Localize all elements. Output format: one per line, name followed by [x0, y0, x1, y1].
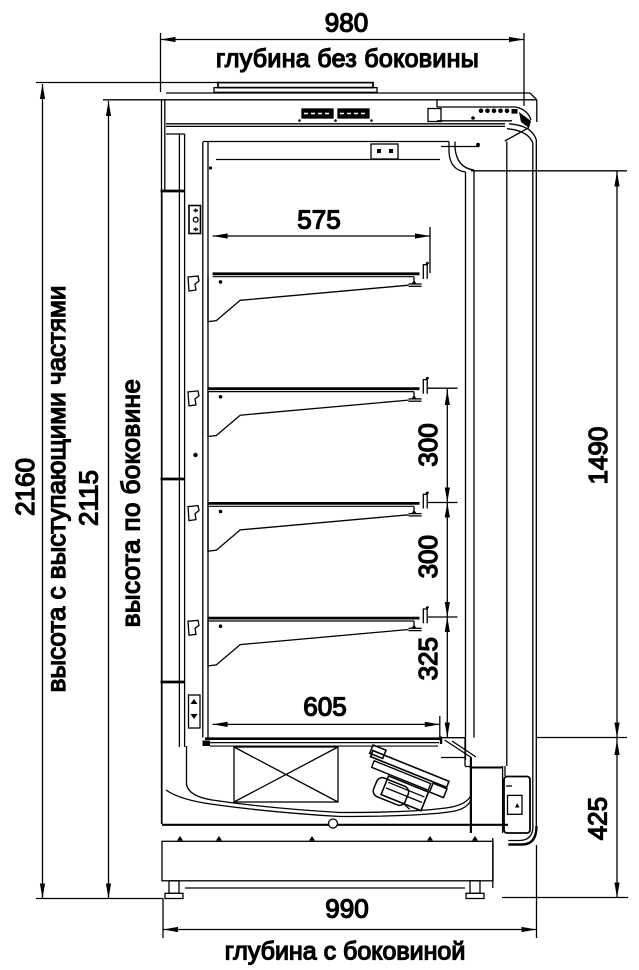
- svg-text:высота с выступающими частями: высота с выступающими частями: [41, 286, 71, 693]
- svg-text:высота по боковине: высота по боковине: [116, 379, 146, 628]
- svg-text:1490: 1490: [583, 427, 613, 485]
- svg-text:575: 575: [297, 205, 340, 235]
- svg-text:300: 300: [413, 535, 443, 578]
- svg-text:605: 605: [303, 692, 346, 722]
- svg-text:глубина с боковиной: глубина с боковиной: [225, 938, 466, 966]
- svg-text:2160: 2160: [10, 458, 40, 516]
- svg-text:300: 300: [413, 423, 443, 466]
- svg-text:325: 325: [413, 637, 443, 680]
- svg-text:425: 425: [583, 797, 613, 840]
- svg-text:2115: 2115: [74, 470, 104, 526]
- svg-text:980: 980: [325, 8, 368, 38]
- svg-text:990: 990: [325, 894, 368, 924]
- svg-text:глубина без боковины: глубина без боковины: [216, 45, 479, 73]
